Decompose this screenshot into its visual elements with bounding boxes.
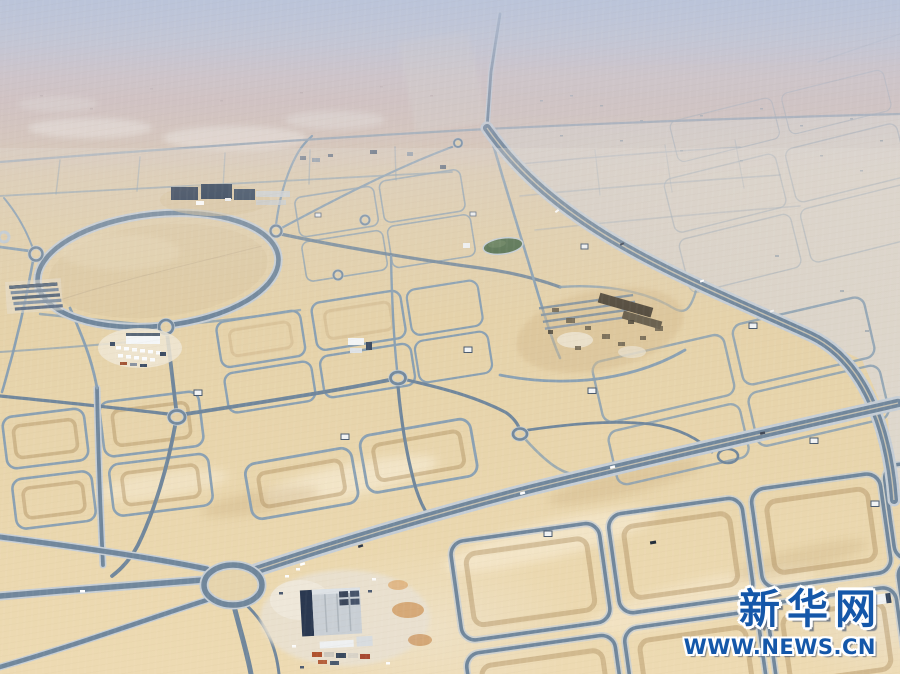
photo-grain-layer: [0, 0, 900, 674]
xinhua-logo-text: 新华网: [684, 589, 883, 630]
xinhua-watermark: 新华网 WWW.NEWS.CN: [684, 589, 876, 658]
aerial-photo: 新华网 WWW.NEWS.CN: [0, 0, 900, 674]
xinhua-url-text: WWW.NEWS.CN: [684, 637, 876, 658]
